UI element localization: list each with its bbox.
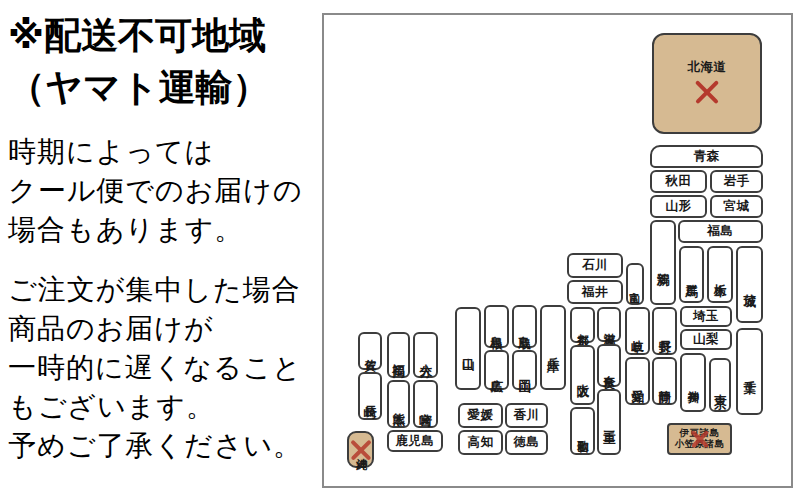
prefecture-label-akita: 秋田 xyxy=(666,174,692,188)
prefecture-gunma: 群馬 xyxy=(679,246,704,303)
prefecture-label-kyoto: 京都 xyxy=(576,324,589,326)
prefecture-label-tokyo: 東京 xyxy=(713,384,727,386)
prefecture-kagoshima: 鹿児島 xyxy=(387,430,443,452)
prefecture-label-nagasaki: 長崎 xyxy=(363,395,377,397)
prefecture-hokkaido: 北海道 xyxy=(652,33,762,134)
prefecture-gifu: 岐阜 xyxy=(625,307,650,355)
prefecture-label-nara: 奈良 xyxy=(602,365,616,367)
prefecture-akita: 秋田 xyxy=(650,170,707,193)
prefecture-label-tochigi: 栃木 xyxy=(713,274,727,276)
prefecture-label-aomori: 青森 xyxy=(694,149,720,163)
prefecture-label-fukushima: 福島 xyxy=(708,224,734,238)
prefecture-label-iwate: 岩手 xyxy=(724,174,750,188)
prefecture-iwate: 岩手 xyxy=(710,170,763,193)
prefecture-fukuoka: 福岡 xyxy=(387,332,410,378)
prefecture-kyoto: 京都 xyxy=(570,307,595,343)
x-mark-icon xyxy=(692,77,722,107)
prefecture-label-gunma: 群馬 xyxy=(684,274,698,276)
prefecture-label-oita: 大分 xyxy=(418,354,432,356)
prefecture-yamanashi: 山梨 xyxy=(680,329,732,350)
prefecture-osaka: 大阪 xyxy=(570,345,595,405)
prefecture-okayama: 岡山 xyxy=(512,350,537,390)
prefecture-label-gifu: 岐阜 xyxy=(630,330,644,332)
prefecture-label-miyagi: 宮城 xyxy=(724,199,750,213)
delivery-notice-panel: ※配送不可地域 （ヤマト運輸） 時期によっては クール便でのお届けの 場合もあり… xyxy=(8,10,318,465)
notice-title-line2: （ヤマト運輸） xyxy=(8,62,318,114)
prefecture-label-kumamoto: 熊本 xyxy=(391,403,405,405)
prefecture-label-niigata: 新潟 xyxy=(656,262,670,264)
prefecture-label-kanagawa: 神奈川 xyxy=(686,381,699,384)
notice-text-line: 時期によっては xyxy=(8,132,318,171)
notice-text-line: 予めご了承ください。 xyxy=(8,426,318,465)
prefecture-miyagi: 宮城 xyxy=(710,195,763,218)
prefecture-yamaguchi: 山口 xyxy=(455,307,481,390)
prefecture-aomori: 青森 xyxy=(650,145,763,168)
prefecture-fukushima: 福島 xyxy=(678,220,763,243)
notice-paragraph-cool-delivery: 時期によっては クール便でのお届けの 場合もあります。 xyxy=(8,132,318,249)
prefecture-kagawa: 香川 xyxy=(505,403,548,428)
prefecture-nagasaki: 長崎 xyxy=(358,372,382,420)
prefecture-chiba: 千葉 xyxy=(736,328,763,415)
prefecture-label-hokkaido: 北海道 xyxy=(688,60,727,74)
prefecture-label-hiroshima: 広島 xyxy=(489,369,503,371)
prefecture-label-fukui: 福井 xyxy=(582,285,608,299)
notice-text-line: 一時的に遅くなること xyxy=(8,348,318,387)
prefecture-nagano: 長野 xyxy=(652,307,677,355)
japan-map: 北海道青森秋田岩手山形宮城福島新潟群馬栃木茨城石川福井富山長野静岡岐阜愛知滋賀奈… xyxy=(322,13,793,488)
prefecture-label-toyama: 富山 xyxy=(629,283,641,285)
prefecture-label-fukuoka: 福岡 xyxy=(391,354,405,356)
prefecture-label-aichi: 愛知 xyxy=(630,380,644,382)
prefecture-label-kagawa: 香川 xyxy=(514,408,540,422)
prefecture-tottori: 鳥取 xyxy=(512,305,537,348)
notice-text-line: クール便でのお届けの xyxy=(8,171,318,210)
prefecture-label-ishikawa: 石川 xyxy=(582,258,608,272)
prefecture-label-ibaraki: 茨城 xyxy=(742,284,756,286)
prefecture-miyazaki: 宮崎 xyxy=(413,380,438,428)
prefecture-tokyo: 東京 xyxy=(709,358,731,412)
notice-text-line: 場合もあります。 xyxy=(8,210,318,249)
prefecture-yamagata: 山形 xyxy=(650,195,707,218)
prefecture-hiroshima: 広島 xyxy=(484,350,509,390)
prefecture-label-nagano: 長野 xyxy=(657,330,671,332)
prefecture-saga: 佐賀 xyxy=(358,332,382,370)
prefecture-tochigi: 栃木 xyxy=(707,246,733,303)
prefecture-shizuoka: 静岡 xyxy=(652,357,677,405)
prefecture-nara: 奈良 xyxy=(597,344,621,387)
prefecture-label-yamanashi: 山梨 xyxy=(693,332,719,346)
prefecture-fukui: 福井 xyxy=(567,280,623,304)
prefecture-label-chiba: 千葉 xyxy=(742,371,756,373)
prefecture-shimane: 島根 xyxy=(484,305,509,348)
prefecture-shiga: 滋賀 xyxy=(597,307,621,342)
prefecture-label-shizuoka: 静岡 xyxy=(657,380,671,382)
prefecture-label-shiga: 滋賀 xyxy=(602,324,615,326)
x-mark-icon xyxy=(689,428,711,450)
prefecture-label-tottori: 鳥取 xyxy=(517,326,531,328)
prefecture-izu-ogasawara: 伊豆諸島小笠原諸島 xyxy=(667,423,732,455)
prefecture-mie: 三重 xyxy=(597,389,621,455)
prefecture-label-okayama: 岡山 xyxy=(517,369,531,371)
prefecture-label-kagoshima: 鹿児島 xyxy=(396,434,435,448)
prefecture-label-yamagata: 山形 xyxy=(666,199,692,213)
prefecture-saitama: 埼玉 xyxy=(680,306,732,327)
prefecture-ehime: 愛媛 xyxy=(458,403,503,428)
prefecture-toyama: 富山 xyxy=(626,263,644,305)
prefecture-label-shimane: 島根 xyxy=(489,326,503,328)
prefecture-niigata: 新潟 xyxy=(650,220,676,305)
prefecture-label-osaka: 大阪 xyxy=(575,374,589,376)
prefecture-label-saga: 佐賀 xyxy=(363,350,376,352)
prefecture-kochi: 高知 xyxy=(458,430,503,455)
prefecture-tokushima: 徳島 xyxy=(505,430,548,455)
prefecture-hyogo: 兵庫 xyxy=(540,305,566,390)
prefecture-ishikawa: 石川 xyxy=(567,253,623,278)
prefecture-aichi: 愛知 xyxy=(625,357,650,405)
prefecture-label-tokushima: 徳島 xyxy=(514,435,540,449)
prefecture-wakayama: 和歌山 xyxy=(570,407,595,455)
prefecture-label-miyazaki: 宮崎 xyxy=(418,403,432,405)
prefecture-label-saitama: 埼玉 xyxy=(693,309,719,323)
prefecture-label-wakayama: 和歌山 xyxy=(576,430,589,433)
prefecture-ibaraki: 茨城 xyxy=(736,246,763,323)
prefecture-kumamoto: 熊本 xyxy=(387,380,410,428)
page: { "left_panel": { "title_line1": "※配送不可地… xyxy=(0,0,800,500)
prefecture-label-hyogo: 兵庫 xyxy=(546,347,560,349)
notice-text-line: もございます。 xyxy=(8,387,318,426)
notice-paragraph-delay: ご注文が集中した場合 商品のお届けが 一時的に遅くなること もございます。 予め… xyxy=(8,270,318,465)
prefecture-label-mie: 三重 xyxy=(602,421,616,423)
prefecture-kanagawa: 神奈川 xyxy=(680,353,706,412)
prefecture-label-yamaguchi: 山口 xyxy=(461,348,475,350)
prefecture-label-kochi: 高知 xyxy=(468,435,494,449)
x-mark-icon xyxy=(348,437,374,463)
notice-title-line1: ※配送不可地域 xyxy=(8,10,318,62)
notice-text-line: 商品のお届けが xyxy=(8,309,318,348)
prefecture-okinawa: 沖縄 xyxy=(347,431,374,468)
notice-text-line: ご注文が集中した場合 xyxy=(8,270,318,309)
prefecture-oita: 大分 xyxy=(413,332,438,378)
prefecture-label-ehime: 愛媛 xyxy=(468,408,494,422)
